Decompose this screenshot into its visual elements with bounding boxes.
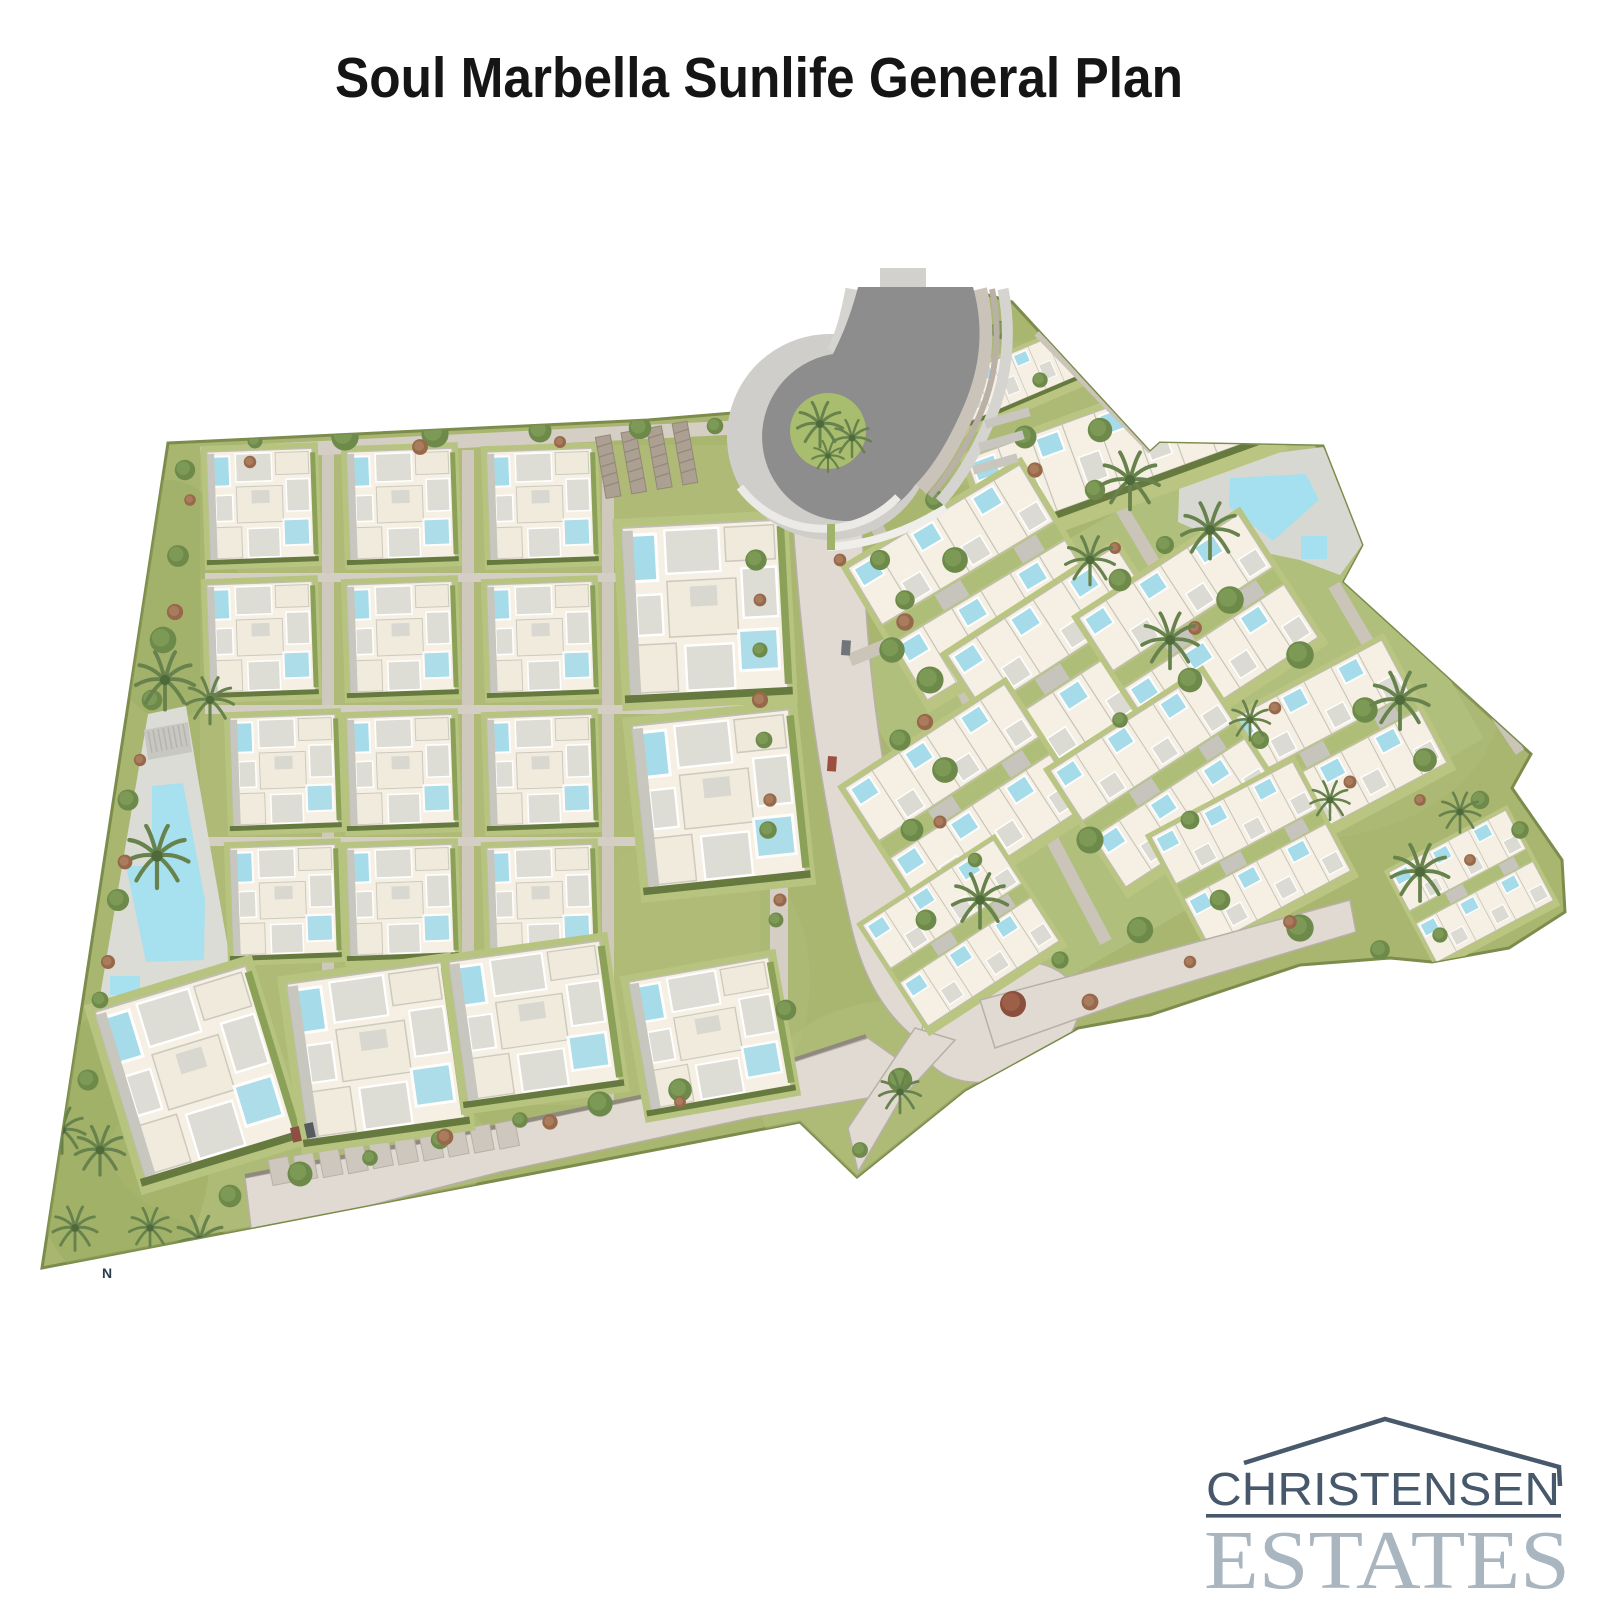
svg-text:CHRISTENSEN: CHRISTENSEN xyxy=(1206,1463,1560,1515)
svg-text:ESTATES: ESTATES xyxy=(1204,1514,1570,1600)
svg-text:N: N xyxy=(102,1265,112,1281)
svg-text:Soul Marbella Sunlife General: Soul Marbella Sunlife General Plan xyxy=(335,46,1183,110)
